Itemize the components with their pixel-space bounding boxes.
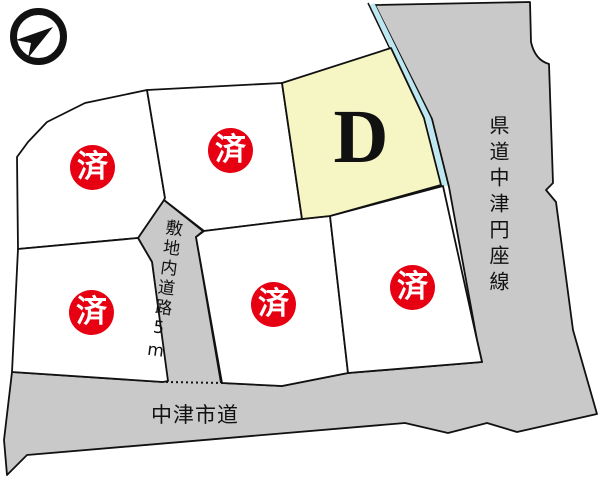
sold-badge-lot-6: 済	[390, 265, 435, 310]
lot-d-label: D	[329, 99, 393, 175]
north-arrow-icon	[14, 12, 64, 62]
sold-badge-lot-5: 済	[251, 282, 296, 327]
prefectural-road-label: 県道中津円座線	[484, 115, 513, 297]
sold-badge-lot-2: 済	[208, 128, 253, 173]
sold-badge-lot-4: 済	[69, 290, 114, 335]
city-road-label: 中津市道	[151, 399, 239, 429]
sold-badge-lot-1: 済	[70, 145, 115, 190]
lot-map: 県道中津円座線 中津市道 敷地内道路5m D 済 済 済 済 済	[0, 0, 600, 483]
